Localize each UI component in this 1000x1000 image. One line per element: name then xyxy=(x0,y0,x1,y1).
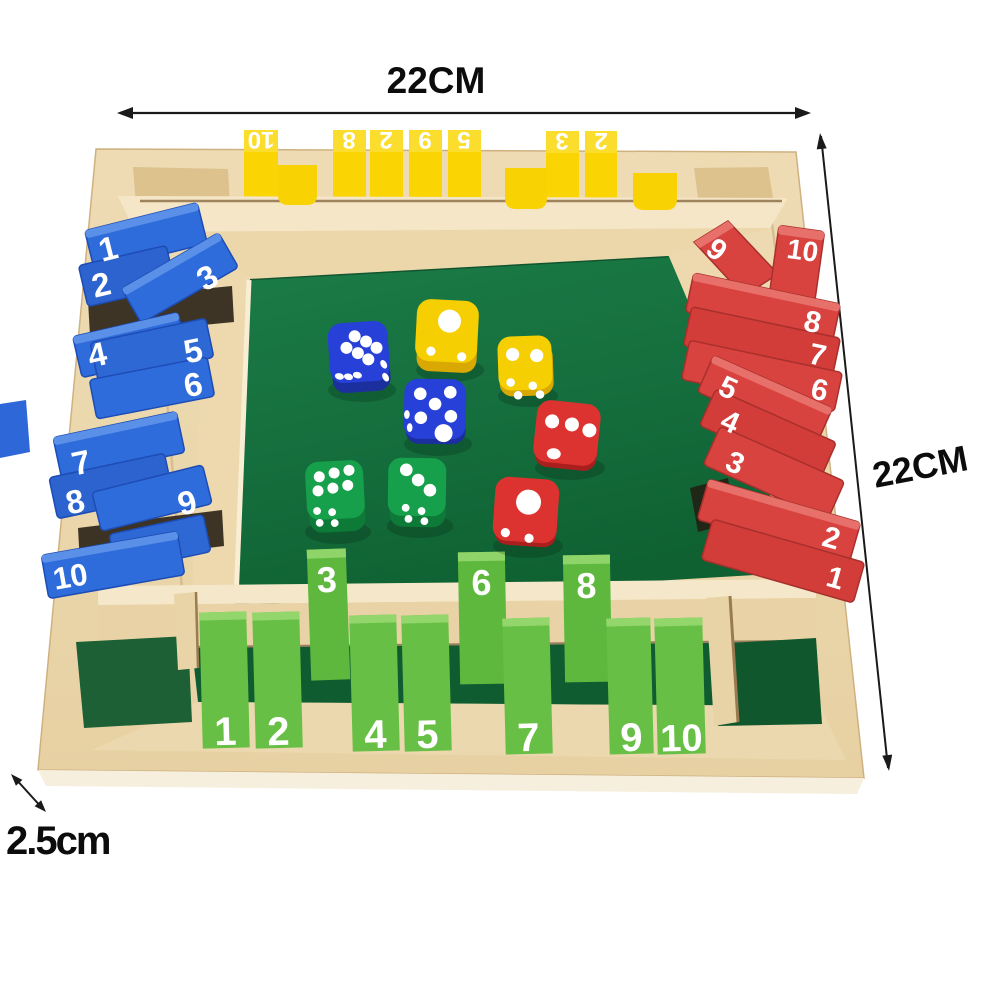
svg-text:6: 6 xyxy=(471,562,492,603)
svg-text:2.5cm: 2.5cm xyxy=(6,819,110,863)
svg-text:10: 10 xyxy=(785,233,820,268)
svg-text:1: 1 xyxy=(214,710,237,755)
svg-text:5: 5 xyxy=(416,713,439,758)
svg-text:8: 8 xyxy=(342,126,355,153)
svg-text:22CM: 22CM xyxy=(387,60,486,101)
svg-text:2: 2 xyxy=(379,126,392,153)
svg-text:8: 8 xyxy=(576,565,597,606)
svg-text:2: 2 xyxy=(267,710,290,755)
svg-text:9: 9 xyxy=(620,716,643,761)
svg-text:3: 3 xyxy=(555,127,568,154)
svg-text:9: 9 xyxy=(418,126,431,153)
svg-text:2: 2 xyxy=(594,127,607,154)
svg-text:5: 5 xyxy=(457,126,470,153)
svg-text:4: 4 xyxy=(364,713,388,758)
svg-text:3: 3 xyxy=(316,559,337,601)
svg-text:7: 7 xyxy=(517,716,540,761)
svg-text:10: 10 xyxy=(660,717,703,760)
svg-text:10: 10 xyxy=(248,126,275,153)
svg-text:10: 10 xyxy=(50,556,90,596)
